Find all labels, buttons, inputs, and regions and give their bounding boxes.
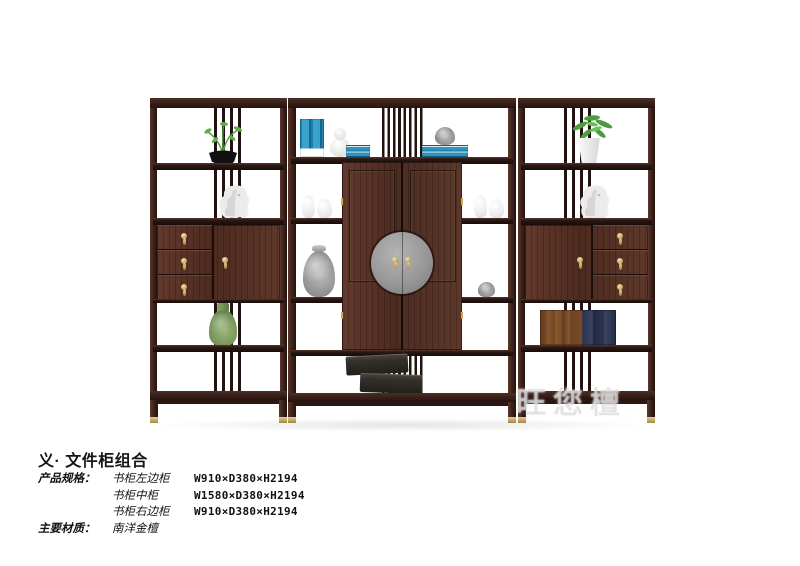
gray-jar xyxy=(435,127,455,145)
blue-books-upright xyxy=(300,119,324,157)
spec-label-spacer xyxy=(38,488,112,505)
side-shelf xyxy=(291,297,342,303)
jar-lid xyxy=(312,245,326,252)
product-specs: 产品规格： 书柜左边柜 W910×D380×H2194 书柜中柜 W1580×D… xyxy=(38,471,305,537)
side-shelf xyxy=(291,218,342,224)
vase-neck xyxy=(217,303,229,311)
top-rail xyxy=(518,98,655,108)
spec-row: 书柜中柜 W1580×D380×H2194 xyxy=(38,488,305,505)
shelf-board xyxy=(521,218,652,225)
center-cabinet xyxy=(288,98,516,423)
shelf-board xyxy=(153,218,284,225)
plant-in-black-bowl xyxy=(200,120,246,164)
lion-statue xyxy=(216,182,254,219)
hinge xyxy=(461,198,463,205)
gray-ginger-jar xyxy=(303,251,335,297)
door-knob[interactable] xyxy=(392,257,398,263)
frost-glass-vases xyxy=(474,195,487,218)
frost-glass-vases xyxy=(489,199,504,218)
spec-item-dims: W910×D380×H2194 xyxy=(194,504,298,521)
door-knob[interactable] xyxy=(222,257,228,263)
shelf-board xyxy=(153,163,284,170)
spec-item-name: 书柜左边柜 xyxy=(112,471,194,488)
left-side-cabinet xyxy=(150,98,287,423)
drawer-knob[interactable] xyxy=(617,233,623,239)
blue-books-stack xyxy=(346,145,370,157)
spec-item-dims: W1580×D380×H2194 xyxy=(194,488,305,505)
leg xyxy=(150,400,158,417)
right-side-cabinet xyxy=(518,98,655,423)
leg xyxy=(647,400,655,417)
shelf-board xyxy=(521,345,652,352)
lion-statue xyxy=(576,182,614,219)
spec-item-name: 书柜中柜 xyxy=(112,488,194,505)
drawer-knob[interactable] xyxy=(181,284,187,290)
drawer-knob[interactable] xyxy=(617,258,623,264)
cabinet-box xyxy=(525,225,648,300)
medallion-seam xyxy=(402,232,403,294)
floor-shadow xyxy=(150,418,655,432)
hinge xyxy=(461,312,463,319)
right-post xyxy=(648,98,655,405)
white-gourd-vase-top xyxy=(334,128,346,140)
apron xyxy=(296,402,508,406)
spec-row: 产品规格： 书柜左边柜 W910×D380×H2194 xyxy=(38,471,305,488)
frost-glass-vases xyxy=(317,199,332,218)
lattice-slats xyxy=(214,352,241,391)
brand-watermark: 旺您檀 xyxy=(516,378,627,422)
cabinet-door[interactable] xyxy=(214,225,280,300)
frost-glass-vases xyxy=(302,195,315,218)
dark-gift-box xyxy=(346,353,409,375)
product-title: 义· 文件柜组合 xyxy=(38,447,148,471)
bottom-shelf xyxy=(150,391,287,400)
apron xyxy=(157,400,280,404)
shelf-board xyxy=(521,163,652,170)
left-post xyxy=(518,98,525,405)
top-rail xyxy=(150,98,287,108)
leg xyxy=(288,402,296,417)
cabinet-box xyxy=(157,225,280,300)
material-row: 主要材质： 南洋金檀 xyxy=(38,521,305,538)
drawer-stack xyxy=(157,225,214,300)
round-brass-plate xyxy=(371,232,433,294)
material-value: 南洋金檀 xyxy=(112,521,194,538)
double-doors xyxy=(342,162,462,350)
spec-label-spacer xyxy=(38,504,112,521)
spec-row: 书柜右边柜 W910×D380×H2194 xyxy=(38,504,305,521)
right-post xyxy=(280,98,287,405)
side-shelf xyxy=(462,218,513,224)
hinge xyxy=(341,312,343,319)
hinge xyxy=(341,198,343,205)
spec-label: 产品规格： xyxy=(38,471,112,488)
drawer-knob[interactable] xyxy=(617,284,623,290)
small-gray-jar xyxy=(478,282,495,297)
door-knob[interactable] xyxy=(577,257,583,263)
cabinet-bottom-edge xyxy=(521,299,652,303)
bottom-shelf xyxy=(288,393,516,402)
drawer-stack xyxy=(593,225,648,300)
spec-item-name: 书柜右边柜 xyxy=(112,504,194,521)
cabinet-door[interactable] xyxy=(525,225,593,300)
top-rail xyxy=(288,98,516,108)
drawer-knob[interactable] xyxy=(181,258,187,264)
material-label: 主要材质： xyxy=(38,521,112,538)
leg xyxy=(508,402,516,417)
blue-books-stack xyxy=(422,145,468,157)
lattice-slats xyxy=(382,108,425,157)
side-shelf xyxy=(462,297,513,303)
leg xyxy=(279,400,287,417)
cabinet-combination-photo: 旺您檀 xyxy=(150,98,655,426)
left-post xyxy=(150,98,157,405)
left-post xyxy=(288,98,296,405)
celadon-vase xyxy=(209,310,237,346)
shelf-board xyxy=(153,345,284,352)
right-post xyxy=(508,98,516,405)
drawer-knob[interactable] xyxy=(181,233,187,239)
dark-gift-box xyxy=(360,373,423,394)
door-knob[interactable] xyxy=(405,257,411,263)
books-row xyxy=(540,310,616,345)
potted-plant xyxy=(570,112,614,142)
spec-item-dims: W910×D380×H2194 xyxy=(194,471,298,488)
